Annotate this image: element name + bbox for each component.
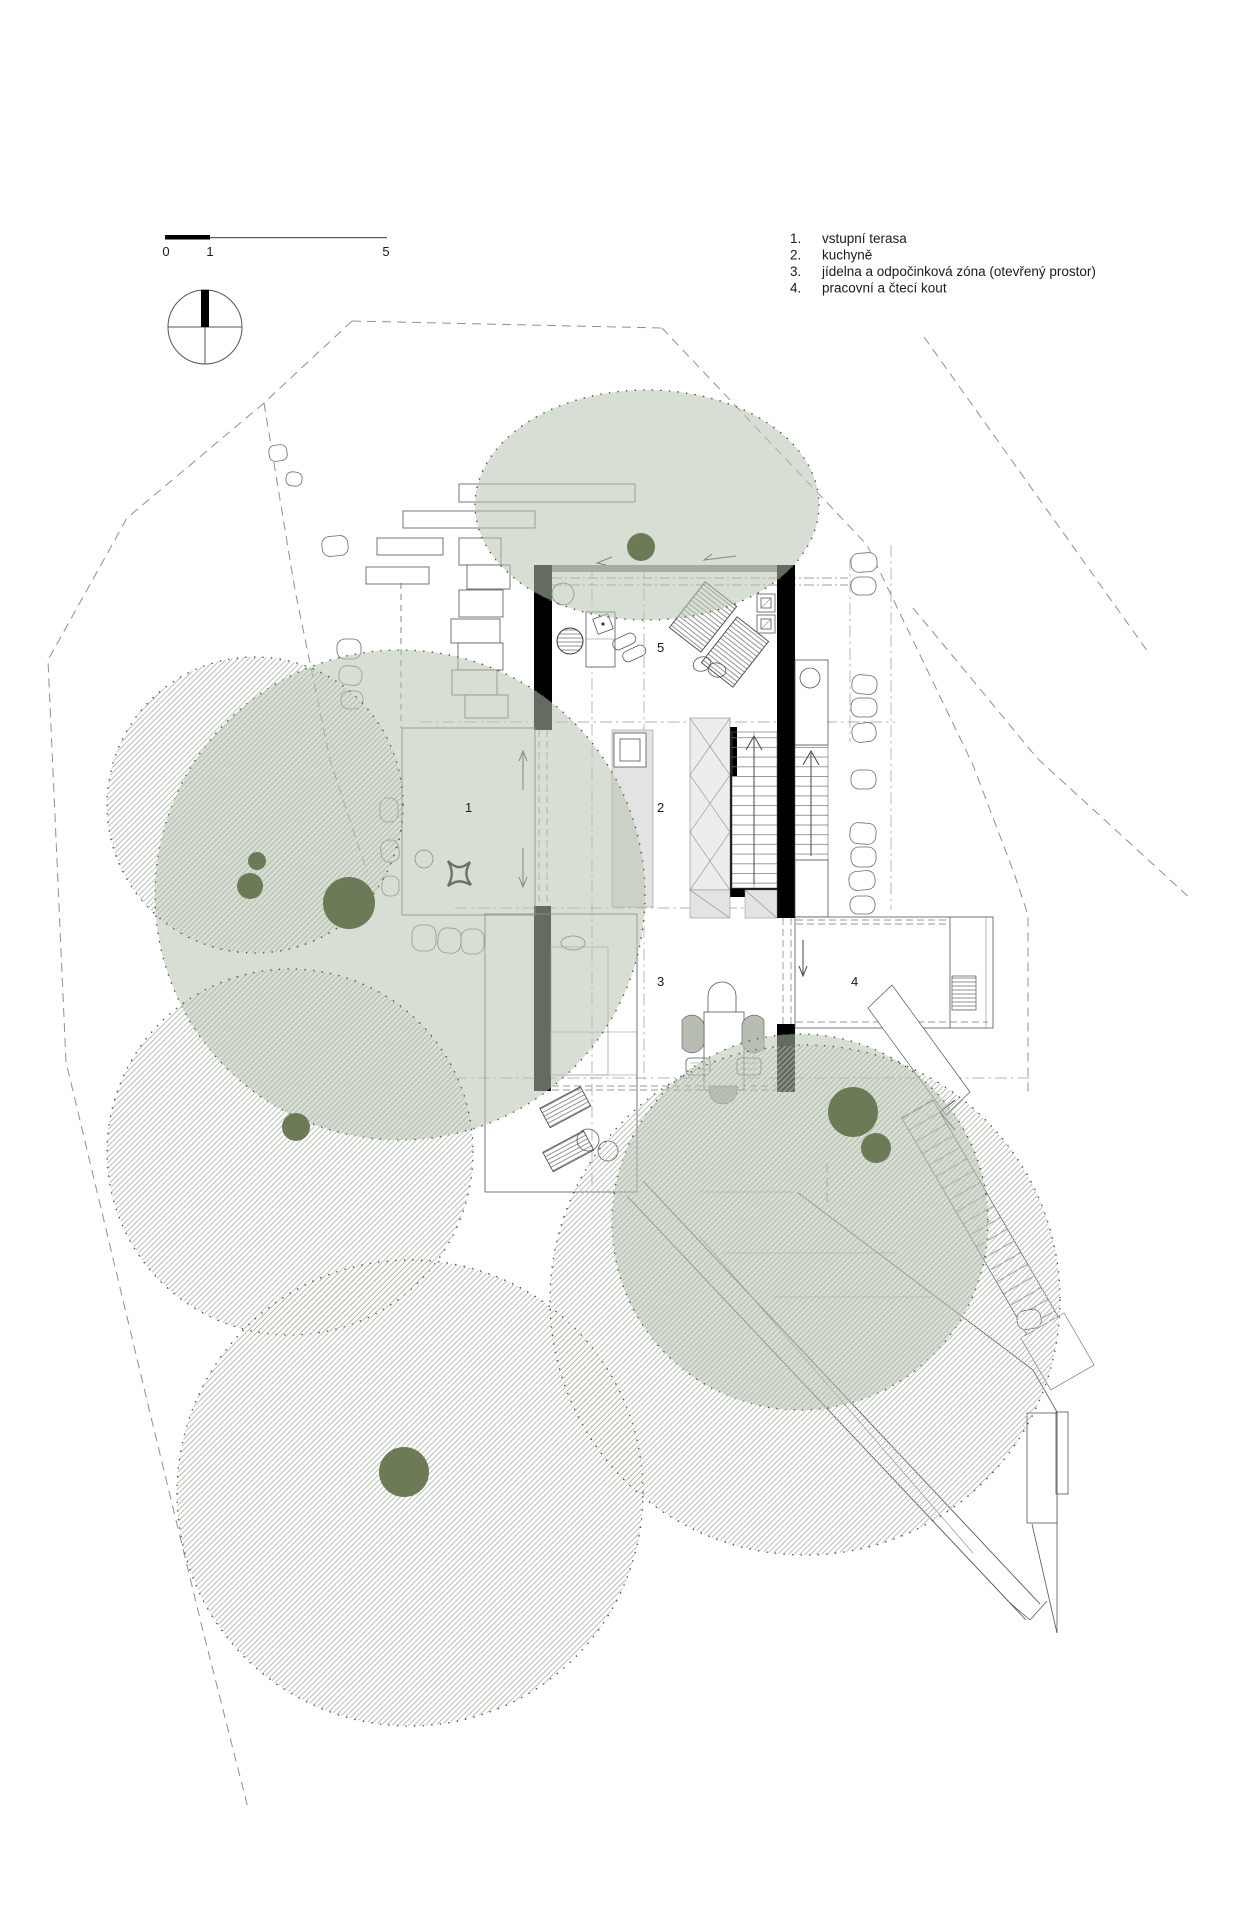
legend: 1. vstupní terasa 2. kuchyně 3. jídelna … [790, 231, 1096, 296]
room-label-5: 5 [657, 640, 664, 655]
plan-canvas: 1 2 3 4 5 0 1 5 1. vstupní terasa 2. kuc… [0, 0, 1242, 1920]
legend-num-4: 4. [790, 281, 801, 296]
legend-num-2: 2. [790, 248, 801, 263]
legend-label-2: kuchyně [822, 248, 872, 263]
shrub-row-east [848, 552, 877, 914]
lounger-1 [540, 1087, 591, 1128]
legend-num-1: 1. [790, 231, 801, 246]
scale-bar-solid-segment [165, 235, 210, 240]
appliance-boxes [757, 594, 775, 633]
legend-num-3: 3. [790, 264, 801, 279]
exterior-stair [795, 660, 828, 917]
room-label-terrace: 1 [465, 800, 472, 815]
scale-label-0: 0 [162, 244, 169, 259]
north-arrow-icon [168, 290, 242, 364]
scale-label-5: 5 [382, 244, 389, 259]
dining-chair-north [708, 982, 736, 1012]
scale-bar-line-segment [210, 237, 387, 238]
barrel-chair [557, 628, 583, 654]
scale-bar: 0 1 5 [162, 235, 389, 259]
site-plan-drawing: 1 2 3 4 5 0 1 5 1. vstupní terasa 2. kuc… [0, 0, 1242, 1920]
room-label-dining: 3 [657, 974, 664, 989]
interior-stair [732, 732, 777, 888]
room-label-kitchen: 2 [657, 800, 664, 815]
shelf [952, 976, 976, 1010]
legend-label-4: pracovní a čtecí kout [822, 281, 947, 296]
room-label-work: 4 [851, 974, 858, 989]
legend-label-1: vstupní terasa [822, 231, 907, 246]
legend-label-3: jídelna a odpočinková zóna (otevřený pro… [821, 264, 1096, 279]
dining-chair-west [682, 1015, 704, 1053]
scale-label-1: 1 [206, 244, 213, 259]
